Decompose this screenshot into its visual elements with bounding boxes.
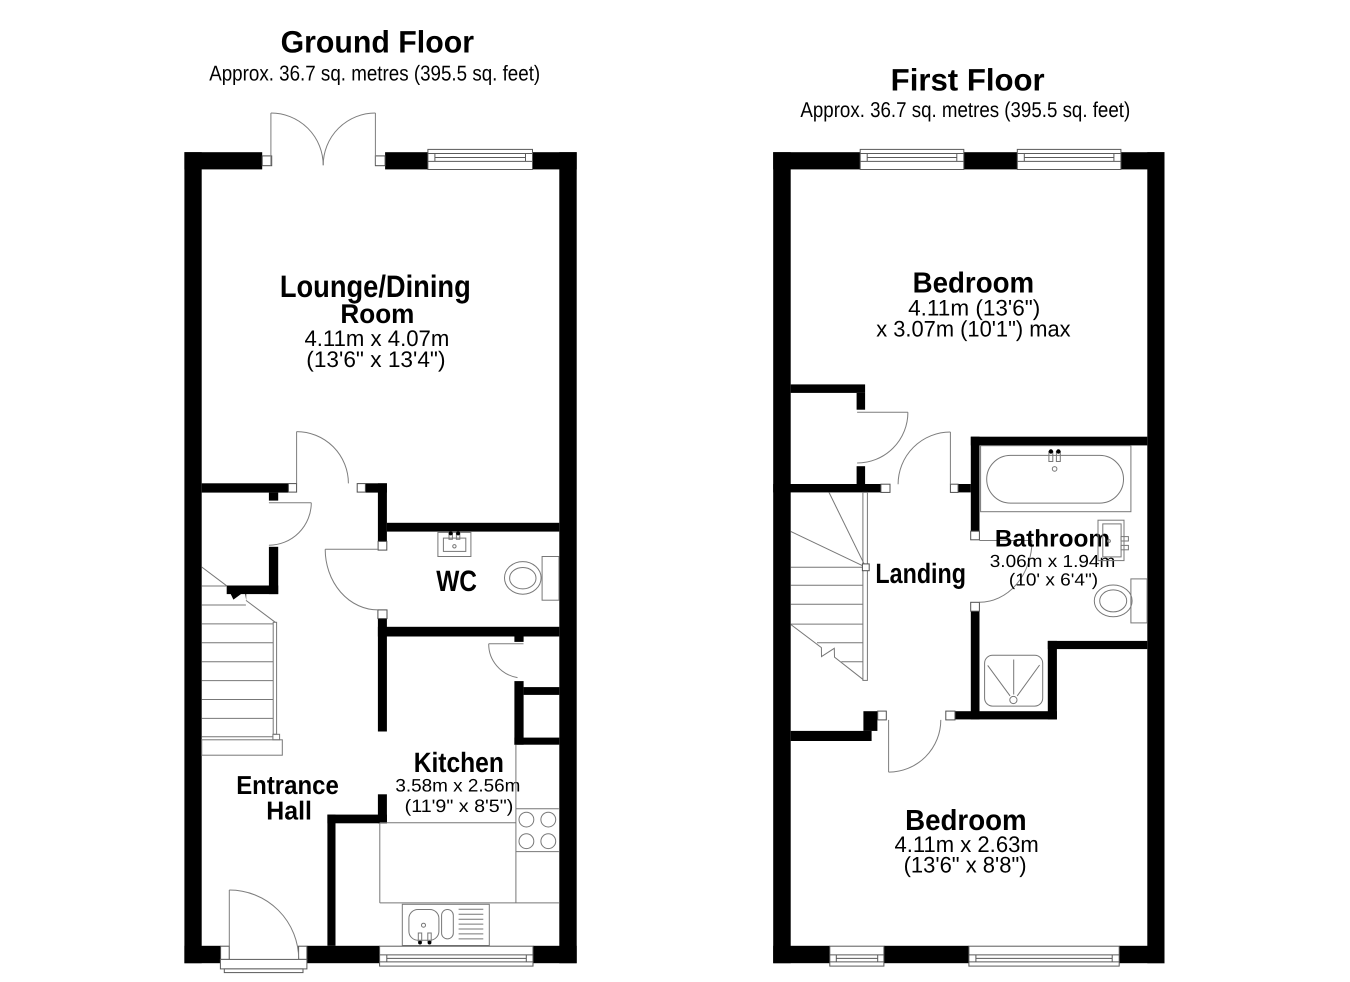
svg-text:Hall: Hall <box>266 795 312 825</box>
svg-text:3.58m x 2.56m: 3.58m x 2.56m <box>395 776 520 796</box>
svg-text:Kitchen: Kitchen <box>414 747 504 778</box>
svg-text:(11'9" x 8'5"): (11'9" x 8'5") <box>405 796 514 816</box>
svg-text:Approx. 36.7 sq. metres (395.5: Approx. 36.7 sq. metres (395.5 sq. feet) <box>209 61 540 85</box>
svg-text:Ground Floor: Ground Floor <box>281 24 474 59</box>
svg-text:3.06m x 1.94m: 3.06m x 1.94m <box>990 551 1116 571</box>
svg-text:(13'6" x 13'4"): (13'6" x 13'4") <box>306 347 445 372</box>
svg-text:First Floor: First Floor <box>891 62 1045 97</box>
svg-text:WC: WC <box>436 565 477 598</box>
svg-text:x 3.07m (10'1") max: x 3.07m (10'1") max <box>876 317 1071 342</box>
svg-text:Bathroom: Bathroom <box>995 525 1110 552</box>
svg-text:(10' x 6'4"): (10' x 6'4") <box>1009 570 1098 590</box>
svg-text:Room: Room <box>340 299 414 329</box>
svg-text:(13'6" x 8'8"): (13'6" x 8'8") <box>904 853 1027 878</box>
svg-text:Approx. 36.7 sq. metres (395.5: Approx. 36.7 sq. metres (395.5 sq. feet) <box>800 98 1130 122</box>
svg-text:Landing: Landing <box>875 558 966 589</box>
